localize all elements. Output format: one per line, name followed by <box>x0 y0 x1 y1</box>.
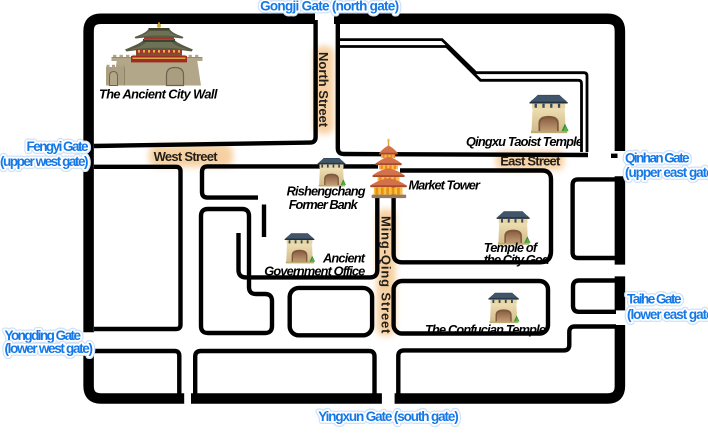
svg-text:(lower west gate): (lower west gate) <box>5 341 94 356</box>
svg-text:the City God: the City God <box>484 252 551 267</box>
svg-text:Government Office: Government Office <box>264 264 365 279</box>
svg-text:Rishengchang: Rishengchang <box>287 183 366 198</box>
svg-text:Qinhan Gate: Qinhan Gate <box>625 151 690 166</box>
svg-text:(upper west gate): (upper west gate) <box>0 154 89 169</box>
svg-text:East Street: East Street <box>500 154 561 169</box>
svg-text:North Street: North Street <box>316 52 331 128</box>
svg-text:The Ancient City Wall: The Ancient City Wall <box>99 87 218 102</box>
svg-text:Taihe Gate: Taihe Gate <box>627 292 682 307</box>
svg-text:(lower east gate): (lower east gate) <box>627 307 708 322</box>
svg-text:The Confucian Temple: The Confucian Temple <box>425 322 546 337</box>
svg-text:Gongji Gate (north gate): Gongji Gate (north gate) <box>260 0 399 14</box>
svg-text:Former Bank: Former Bank <box>289 197 359 212</box>
svg-text:(upper east gate): (upper east gate) <box>625 165 708 180</box>
svg-text:West Street: West Street <box>154 149 219 164</box>
svg-text:Market Tower: Market Tower <box>408 177 481 192</box>
svg-text:Yingxun Gate (south gate): Yingxun Gate (south gate) <box>318 409 459 424</box>
svg-text:Ming-Qing Street: Ming-Qing Street <box>379 216 394 334</box>
svg-text:Fengyi Gate: Fengyi Gate <box>27 139 89 154</box>
svg-text:Qingxu Taoist Temple: Qingxu Taoist Temple <box>466 134 583 149</box>
